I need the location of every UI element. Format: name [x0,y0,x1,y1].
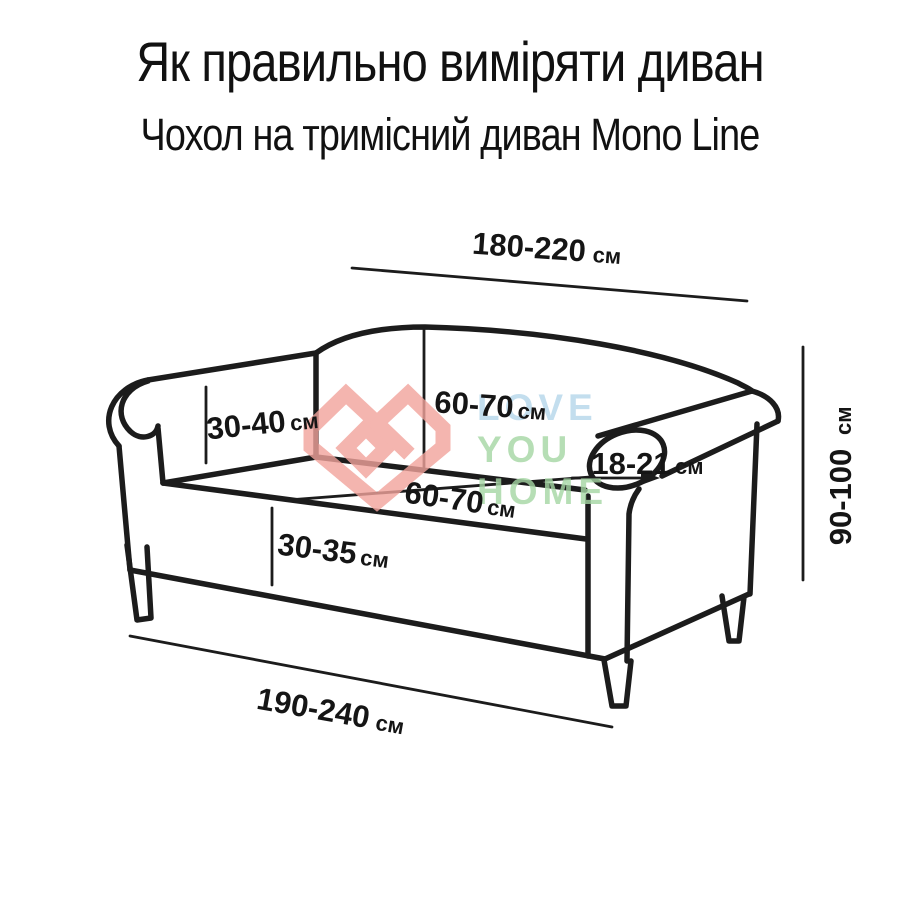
dim-label-total-height: 90-100 см [823,406,858,545]
dim-unit: см [359,545,390,573]
left-arm-inner-edge [158,428,163,483]
dim-value: 30-40 [205,403,288,446]
dim-unit: см [592,242,622,269]
dim-value: 190-240 [254,681,372,735]
front-left-leg [127,545,151,620]
dim-unit: см [374,710,406,740]
dim-label-seat-height: 30-35 см [276,527,392,575]
right-arm-end-cap [752,391,778,421]
right-arm-top-edge [598,391,752,436]
measurement-diagram-page: Як правильно виміряти диван Чохол на три… [0,0,900,900]
sofa-back-top-curve [316,327,752,391]
dim-value: 18-21 [591,446,670,481]
dim-label-bottom-width: 190-240 см [254,681,407,741]
dim-line-bottom-width [130,636,612,727]
skirt-bottom-edge [130,570,605,659]
front-right-post-right-edge [627,489,639,661]
front-right-leg [604,660,631,706]
dim-value: 180-220 [471,226,587,269]
dim-value: 60-70 [433,384,515,424]
dim-unit: см [486,494,518,523]
watermark-you: YOU [477,429,572,470]
dim-value: 30-35 [276,527,359,571]
dim-unit: см [675,454,704,479]
dim-value: 90-100 [823,449,858,546]
sofa-drawing [109,327,779,706]
dim-unit: см [517,398,547,425]
dim-label-arm-inner-height: 30-40 см [205,400,320,447]
dim-line-top-width [352,268,747,301]
left-arm-seat-junction [163,457,316,483]
dim-label-arm-width: 18-21 см [591,446,703,481]
sofa-measurement-figure: LOVE YOU HOME 180-220 см 30-40 см 60-70 … [0,0,900,900]
dim-label-top-width: 180-220 см [471,226,622,271]
dim-value: 60-70 [403,475,486,521]
right-back-edge [750,424,757,594]
dim-unit: см [289,408,320,436]
left-arm-top-edge [148,353,316,380]
dim-unit: см [831,406,856,435]
